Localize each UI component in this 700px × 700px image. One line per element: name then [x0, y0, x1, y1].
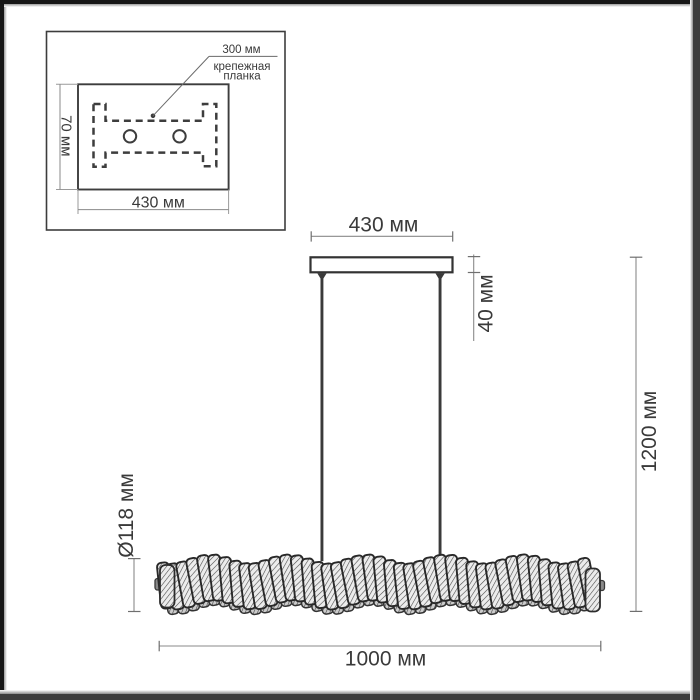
- svg-text:планка: планка: [223, 71, 261, 83]
- svg-text:Ø118 мм: Ø118 мм: [115, 473, 138, 558]
- svg-text:430 мм: 430 мм: [132, 195, 185, 212]
- svg-text:1000 мм: 1000 мм: [345, 648, 426, 671]
- svg-text:430 мм: 430 мм: [349, 214, 419, 237]
- svg-text:40 мм: 40 мм: [475, 274, 498, 332]
- svg-text:1200 мм: 1200 мм: [638, 391, 661, 472]
- svg-text:70 мм: 70 мм: [57, 115, 74, 156]
- svg-text:300 мм: 300 мм: [222, 44, 260, 56]
